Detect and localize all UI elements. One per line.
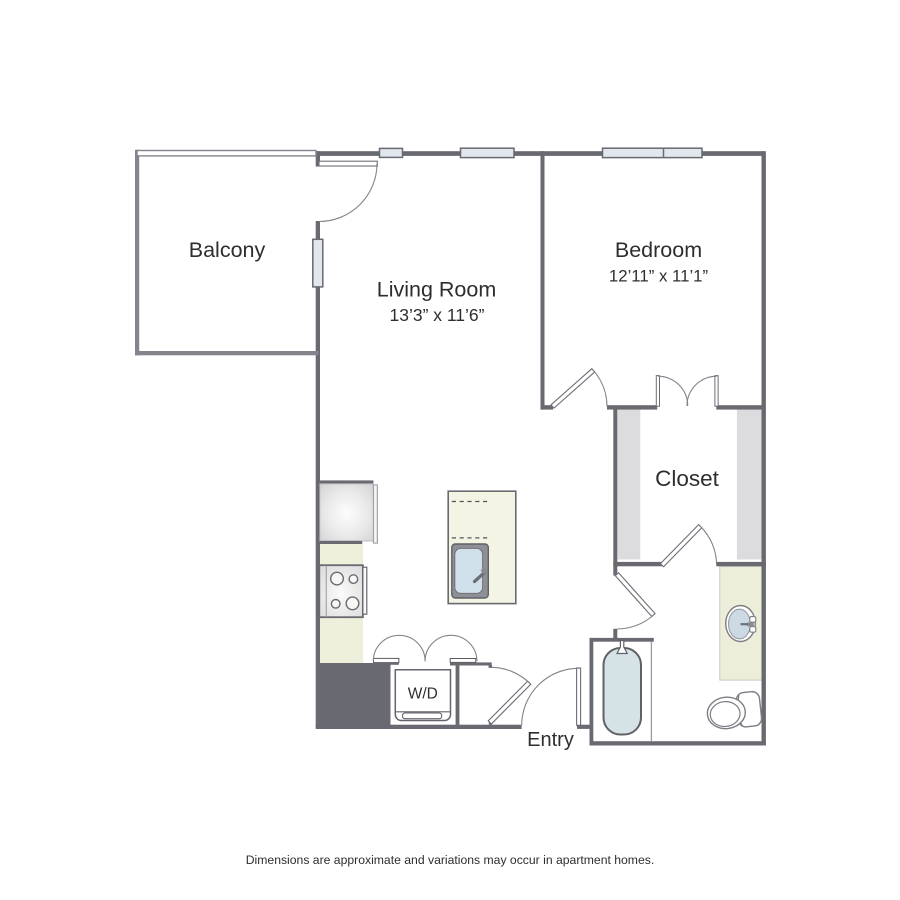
svg-text:Entry: Entry bbox=[527, 729, 574, 751]
svg-text:Living Room: Living Room bbox=[377, 278, 497, 302]
svg-text:Dimensions are approximate and: Dimensions are approximate and variation… bbox=[246, 853, 654, 867]
svg-text:Bedroom: Bedroom bbox=[615, 238, 702, 262]
svg-text:12’11” x 11’1”: 12’11” x 11’1” bbox=[609, 267, 708, 286]
svg-text:W/D: W/D bbox=[408, 685, 438, 702]
svg-text:Closet: Closet bbox=[655, 466, 720, 491]
svg-text:Balcony: Balcony bbox=[189, 238, 266, 262]
svg-text:13’3” x 11’6”: 13’3” x 11’6” bbox=[389, 305, 484, 325]
